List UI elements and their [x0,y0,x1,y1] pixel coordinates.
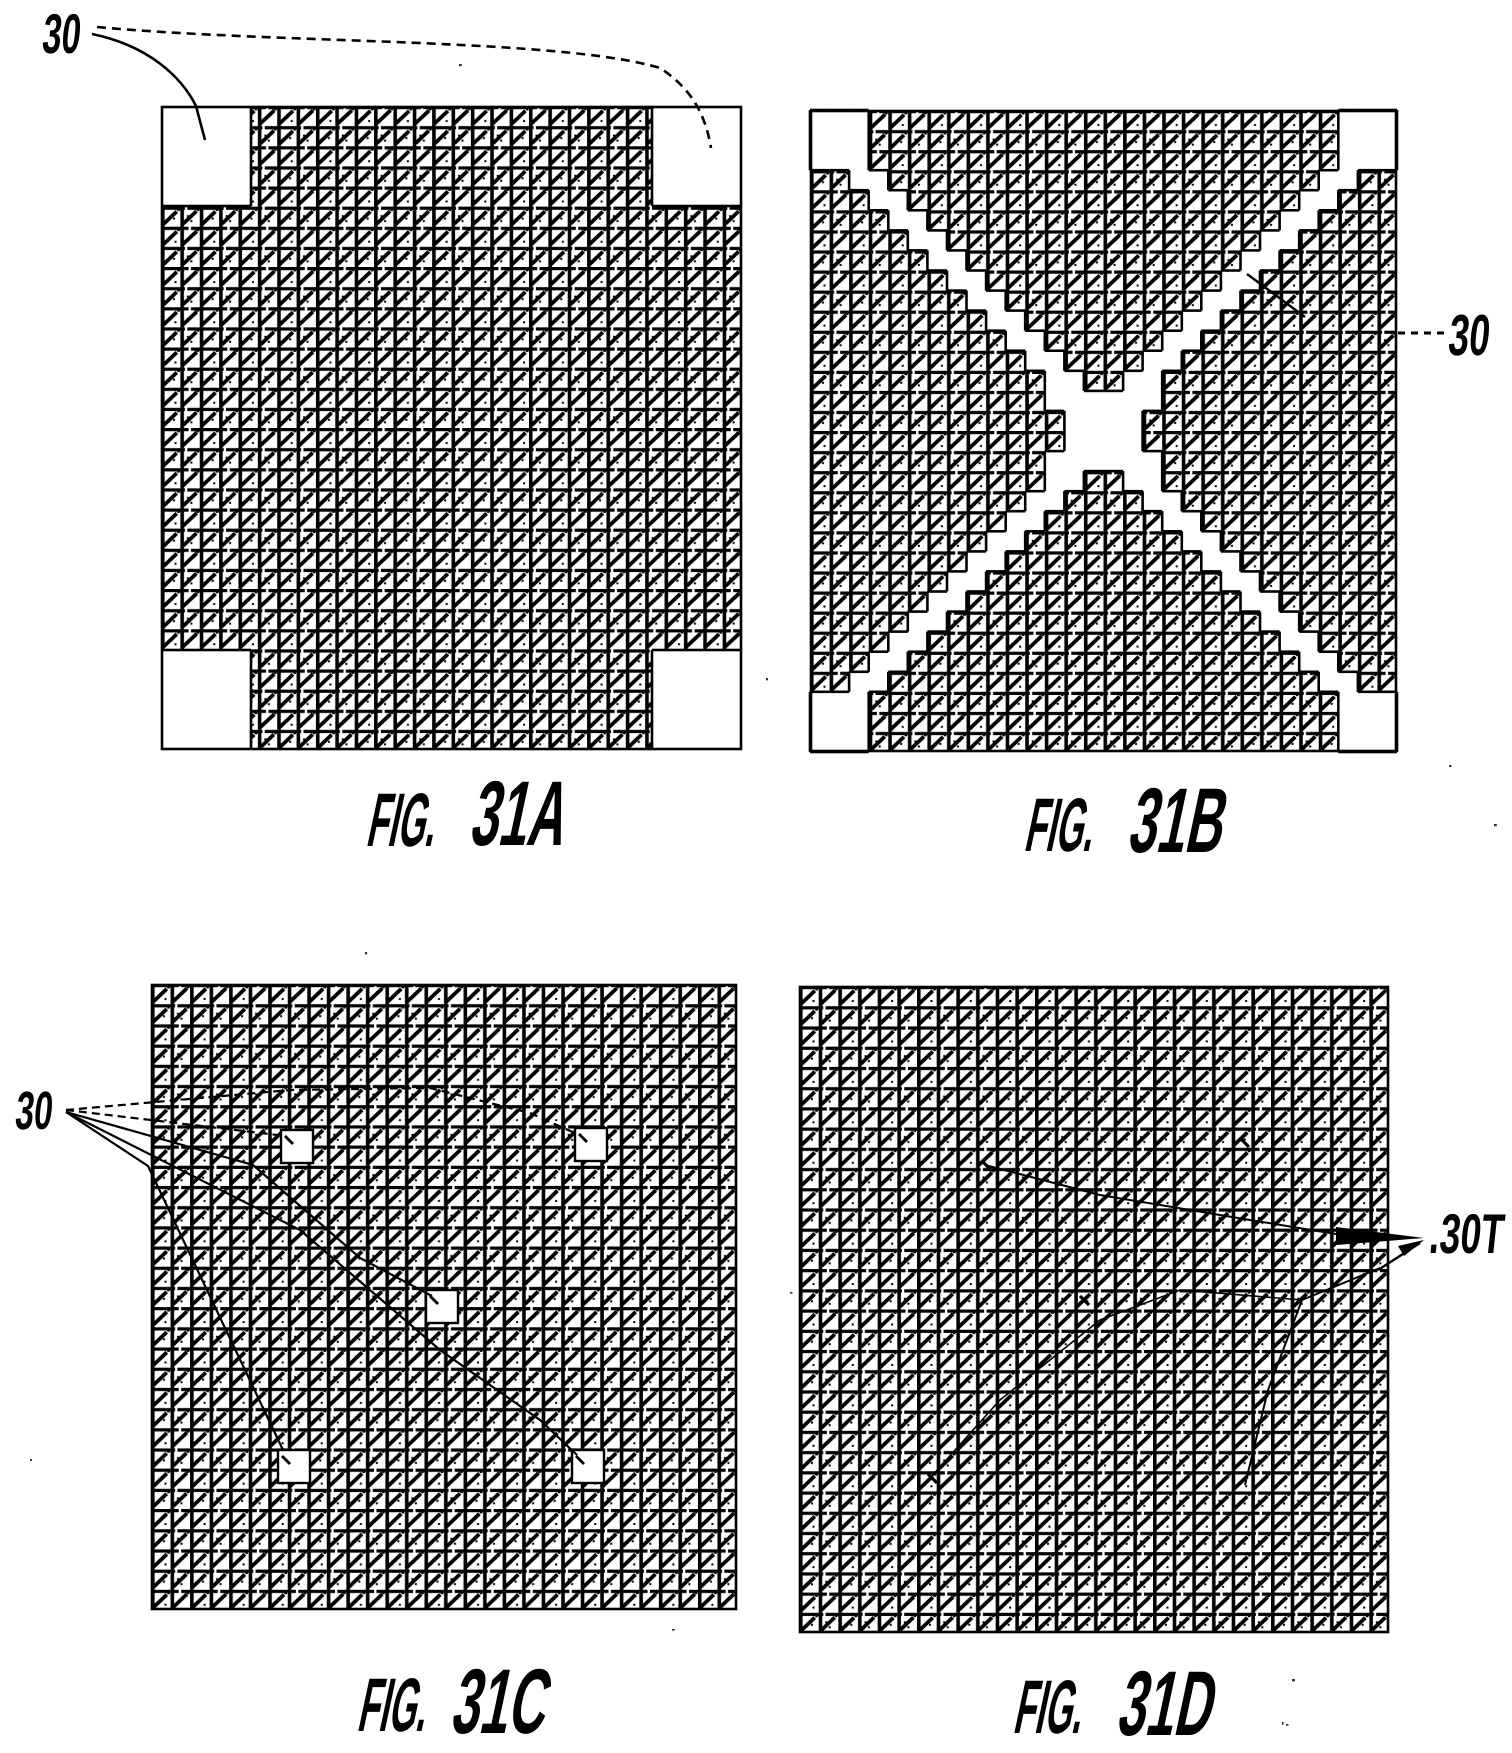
svg-text:30: 30 [13,1081,56,1141]
svg-text:30: 30 [1446,303,1494,368]
svg-text:30: 30 [40,2,85,65]
svg-text:.30T: .30T [1427,1202,1508,1265]
